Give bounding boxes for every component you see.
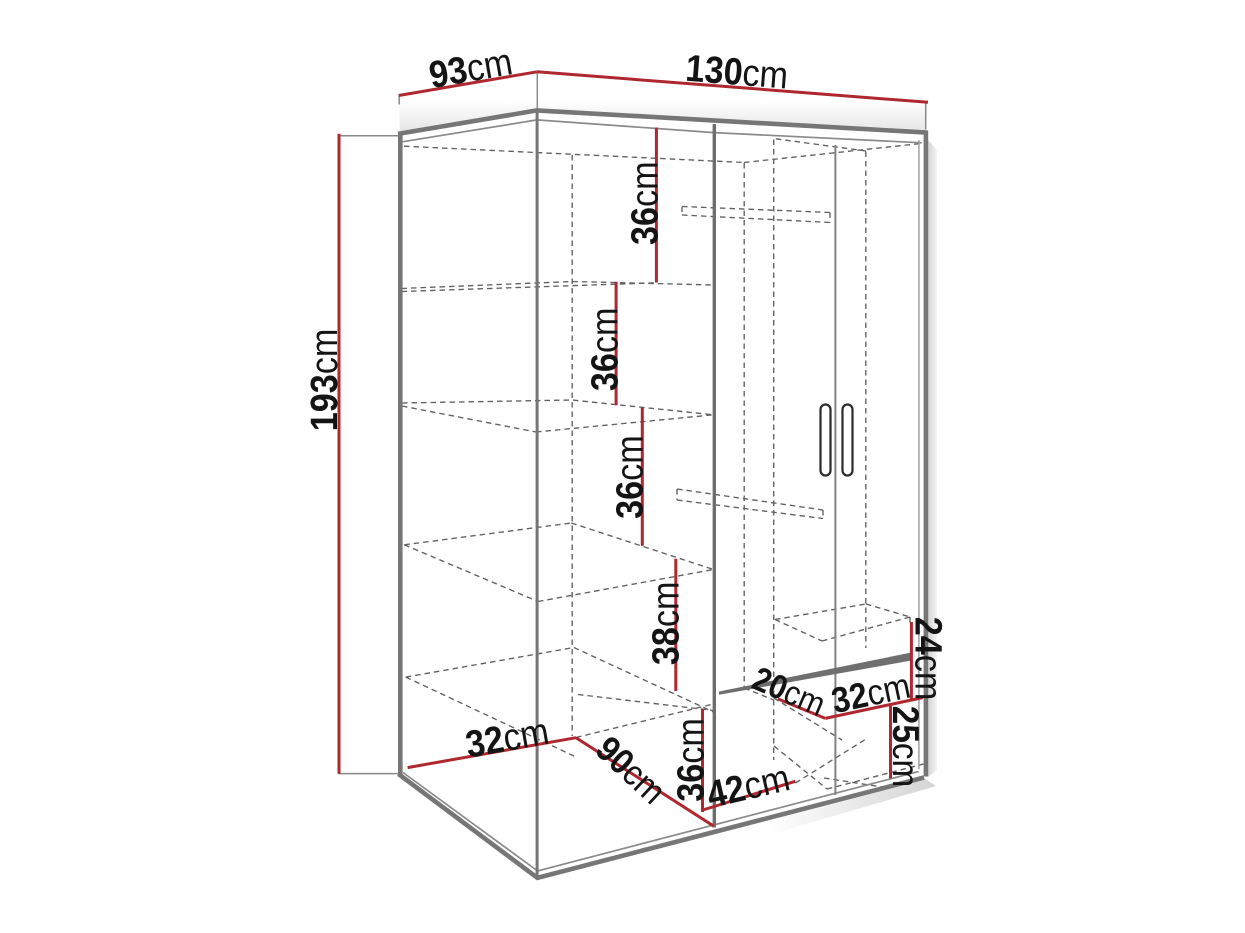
svg-text:24cm: 24cm <box>908 617 951 701</box>
svg-text:130cm: 130cm <box>684 45 790 96</box>
svg-text:25cm: 25cm <box>885 706 926 787</box>
svg-text:42cm: 42cm <box>702 755 793 816</box>
svg-text:90cm: 90cm <box>588 729 673 812</box>
svg-text:36cm: 36cm <box>622 161 665 245</box>
svg-text:193cm: 193cm <box>302 329 345 432</box>
svg-text:36cm: 36cm <box>607 435 650 519</box>
svg-text:38cm: 38cm <box>643 582 686 666</box>
svg-text:36cm: 36cm <box>582 308 625 392</box>
svg-text:20cm: 20cm <box>747 659 831 723</box>
svg-text:36cm: 36cm <box>668 718 711 802</box>
